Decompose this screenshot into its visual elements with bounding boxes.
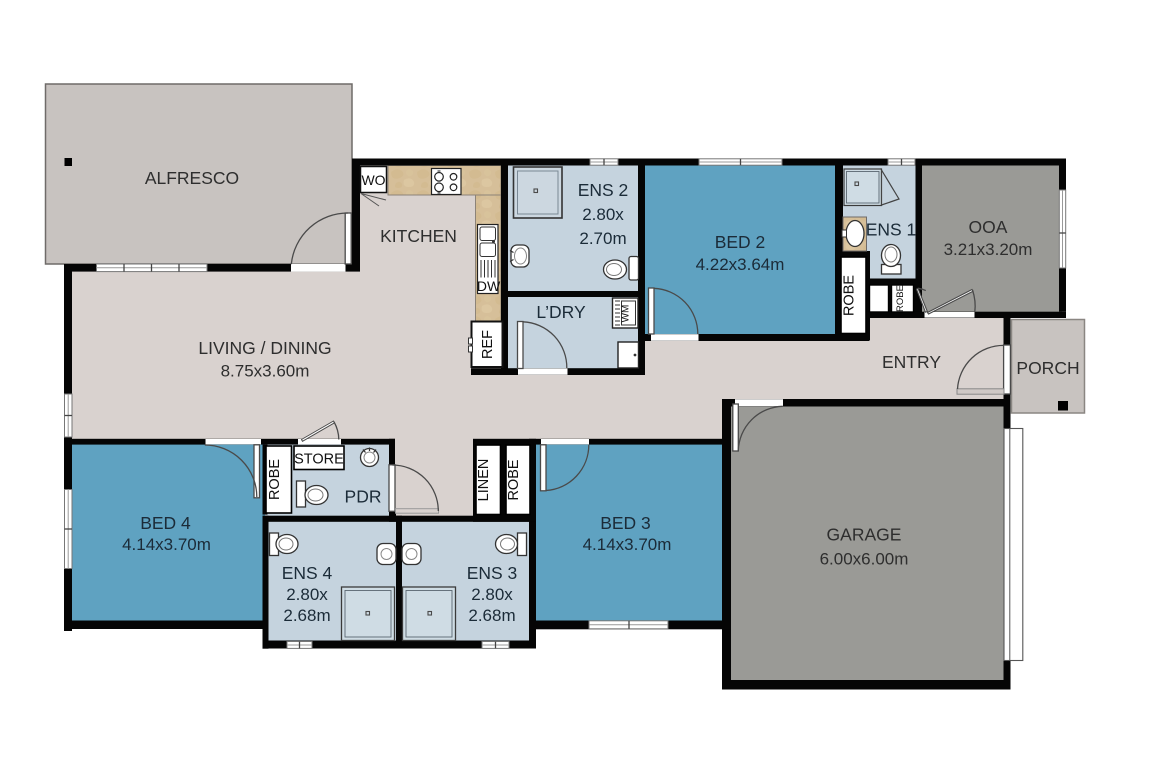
svg-text:ROBE: ROBE: [842, 275, 858, 316]
svg-text:BED 2: BED 2: [715, 232, 766, 252]
svg-text:PORCH: PORCH: [1016, 358, 1079, 378]
svg-text:4.14x3.70m: 4.14x3.70m: [122, 535, 211, 554]
svg-text:REF: REF: [480, 330, 496, 359]
svg-text:OOA: OOA: [969, 217, 1008, 237]
svg-text:BED 4: BED 4: [140, 513, 191, 533]
svg-text:ENS 1: ENS 1: [866, 220, 917, 240]
svg-text:WO: WO: [361, 172, 385, 188]
svg-text:LINEN: LINEN: [476, 459, 492, 502]
svg-text:LIVING / DINING: LIVING / DINING: [198, 338, 331, 358]
svg-text:2.68m: 2.68m: [283, 606, 330, 625]
svg-text:KITCHEN: KITCHEN: [380, 226, 457, 246]
svg-text:ENS 4: ENS 4: [282, 563, 333, 583]
svg-text:4.14x3.70m: 4.14x3.70m: [583, 535, 672, 554]
svg-text:ROBE: ROBE: [506, 459, 522, 500]
svg-text:8.75x3.60m: 8.75x3.60m: [221, 362, 310, 381]
svg-text:4.22x3.64m: 4.22x3.64m: [696, 255, 785, 274]
svg-text:ROBE: ROBE: [267, 459, 283, 500]
svg-text:3.21x3.20m: 3.21x3.20m: [944, 240, 1033, 259]
svg-text:2.68m: 2.68m: [468, 606, 515, 625]
svg-text:PDR: PDR: [345, 487, 382, 507]
svg-text:2.80x: 2.80x: [582, 205, 624, 224]
svg-text:ENS 3: ENS 3: [467, 563, 518, 583]
svg-text:DW: DW: [477, 278, 501, 294]
svg-text:6.00x6.00m: 6.00x6.00m: [820, 550, 909, 569]
svg-text:2.80x: 2.80x: [286, 585, 328, 604]
svg-text:ENTRY: ENTRY: [882, 352, 941, 372]
svg-text:2.70m: 2.70m: [579, 229, 626, 248]
svg-text:STORE: STORE: [294, 452, 344, 468]
svg-text:2.80x: 2.80x: [471, 585, 513, 604]
svg-text:WM: WM: [621, 305, 632, 323]
svg-text:GARAGE: GARAGE: [827, 525, 902, 545]
svg-text:ROBE: ROBE: [895, 285, 906, 312]
svg-text:L’DRY: L’DRY: [536, 302, 586, 322]
svg-text:BED 3: BED 3: [600, 513, 651, 533]
svg-text:ENS 2: ENS 2: [578, 180, 629, 200]
svg-text:ALFRESCO: ALFRESCO: [145, 168, 239, 188]
